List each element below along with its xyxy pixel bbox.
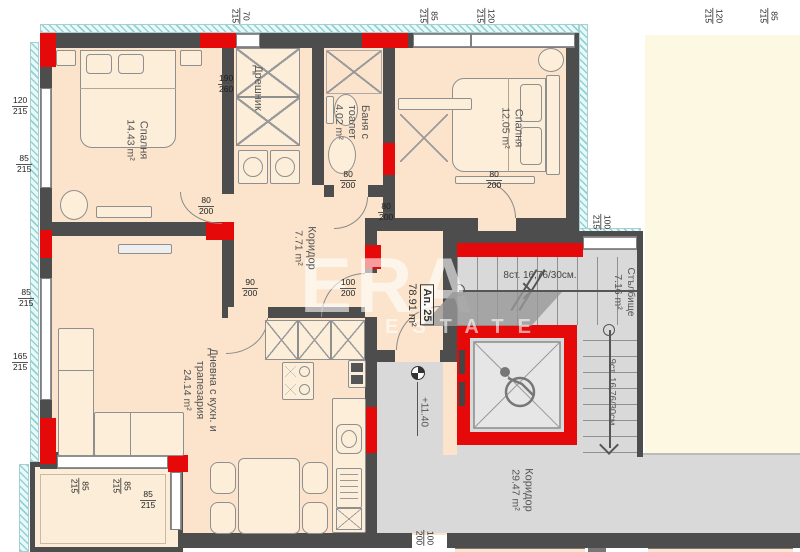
column (40, 230, 52, 258)
room-name: Спалня (513, 109, 525, 147)
window (236, 33, 260, 48)
dishwasher-lines (340, 474, 358, 502)
column (206, 222, 234, 240)
walkline-start (603, 324, 615, 336)
dimension-label: 165215 (12, 352, 28, 373)
burner (285, 384, 296, 395)
dimension-label: 100215 (591, 214, 612, 230)
floor-plan: ERA ESTATE Спалня 14.43 m² Дрешник Баня … (0, 0, 800, 552)
dimension-label: 85215 (140, 490, 156, 511)
wall-segment (516, 218, 579, 231)
apartment-area: 78.91 m² (406, 283, 418, 326)
sofa (94, 412, 184, 456)
dimension-label: 70215 (230, 8, 251, 24)
column (362, 33, 408, 48)
room-area: 14.43 m² (125, 119, 137, 160)
facade-hatch-right (579, 24, 588, 238)
lower-unit-wall (588, 548, 606, 552)
dimension-label: 85215 (111, 478, 132, 494)
room-area: 12.05 m² (500, 107, 512, 148)
room-area: 7.71 m² (293, 230, 305, 266)
dimension-label: 85215 (418, 8, 439, 24)
room-label-bedroom1: Спалня 14.43 m² (125, 119, 150, 160)
wall-segment (222, 48, 234, 194)
room-label-hallway: Коридор 7.71 m² (293, 226, 318, 269)
wall-segment (324, 185, 334, 197)
room-name: Дрешник (252, 65, 264, 111)
column (168, 455, 188, 472)
lower-unit-sliver (648, 548, 793, 552)
room-area: 24.14 m² (181, 369, 193, 410)
nightstand (538, 48, 564, 72)
dining-table (238, 458, 300, 534)
room-name: Дневна с кухн. и (207, 348, 219, 432)
wall-segment (447, 533, 800, 548)
corridor-top-line (643, 453, 800, 455)
kitchen-sink-basin (341, 430, 357, 448)
wall-segment (40, 67, 52, 88)
corridor-floor (377, 455, 800, 533)
desk (96, 206, 152, 218)
room-area: 7.16 m² (612, 274, 624, 310)
room-label-living: Дневна с кухн. и трапезария 24.14 m² (181, 348, 219, 432)
window (40, 278, 52, 400)
dimension-label: 90200 (242, 278, 258, 299)
room-label-bedroom2: Спалня 12.05 m² (500, 107, 525, 148)
dimension-label: 120215 (475, 8, 496, 24)
burner (299, 384, 310, 395)
wall-segment (222, 307, 228, 318)
sofa-cushion-line (58, 370, 94, 371)
stairs-walkline (459, 290, 637, 292)
window (57, 455, 168, 469)
nightstand (180, 50, 202, 66)
column (200, 33, 236, 48)
dimension-label: 80200 (378, 202, 394, 223)
wall-segment (377, 350, 395, 362)
wardrobe (236, 48, 300, 97)
pillow (118, 54, 144, 74)
wall-segment (566, 48, 579, 231)
facade-hatch-balcony (19, 464, 29, 552)
column (383, 143, 395, 175)
blanket-line (80, 88, 176, 89)
room-label-bathroom: Баня с тоалет 4.02 m² (333, 104, 371, 140)
room-label-corridor: Коридор 29.47 m² (510, 468, 535, 511)
room-name: Коридор (523, 468, 535, 511)
window (471, 33, 575, 48)
sofa-cushion-line (130, 412, 131, 456)
shower (326, 50, 382, 94)
desk-chair (60, 190, 88, 220)
dimension-label: 85215 (758, 8, 779, 24)
chair (210, 462, 236, 494)
pillow (86, 54, 112, 74)
burner (299, 366, 310, 377)
adjacent-area (645, 35, 800, 453)
dimension-label: 85215 (16, 154, 32, 175)
oven-door (351, 375, 363, 384)
mirror (400, 114, 448, 162)
elevator-cabin (472, 340, 562, 430)
dimension-label: 190260 (218, 74, 234, 95)
column (365, 407, 377, 453)
wall-segment (40, 400, 52, 418)
room-name: Коридор (306, 226, 318, 269)
washing-machine-drum (275, 157, 295, 177)
headboard (546, 75, 560, 175)
wall-segment (222, 236, 234, 307)
elevator-door (459, 382, 465, 406)
chair (302, 462, 328, 494)
burner (285, 366, 296, 377)
dresser (398, 98, 472, 110)
room-label-closet: Дрешник (252, 65, 264, 111)
wall-segment (40, 258, 52, 278)
window (40, 88, 52, 188)
dimension-label: 120215 (12, 96, 28, 117)
window (413, 33, 471, 48)
wall-segment (440, 350, 457, 362)
room-name: трапезария (194, 361, 206, 420)
room-name: Баня с (359, 105, 371, 139)
wall-segment (183, 533, 412, 548)
elevation-label: +11.40 (419, 397, 430, 427)
apartment-number: Ап. 25 (420, 285, 434, 326)
column (40, 33, 56, 67)
facade-hatch-left (30, 42, 39, 462)
room-area: 29.47 m² (510, 469, 522, 510)
dimension-label: 85215 (69, 478, 90, 494)
tv (118, 244, 172, 254)
elevation-benchmark-icon (411, 366, 425, 380)
kitchen-counter (265, 320, 298, 360)
room-area: 4.02 m² (333, 104, 345, 140)
room-label-stairwell: Стълбище 7.16 m² (612, 268, 636, 317)
apartment-label: Ап. 25 78.91 m² (406, 283, 434, 326)
dimension-label: 80200 (486, 170, 502, 191)
dimension-label: 100200 (340, 278, 356, 299)
wall-segment (368, 185, 395, 197)
nightstand (56, 50, 76, 66)
dimension-label: 80200 (340, 170, 356, 191)
column (40, 418, 56, 464)
oven-door (351, 363, 363, 372)
elevator-door (459, 350, 465, 374)
dimension-label: 100200 (414, 530, 435, 546)
wall-segment (637, 238, 643, 457)
cabinet (336, 508, 362, 530)
lower-unit-sliver (455, 548, 585, 552)
room-name: Спалня (138, 121, 150, 159)
stairs-down-label: 9ст. 16,76/30см (607, 359, 618, 426)
room-name: Стълбище (625, 268, 636, 317)
facade-hatch-top (40, 24, 579, 33)
chair (302, 502, 328, 534)
lobby-floor (377, 362, 443, 457)
window (583, 236, 637, 250)
wall-segment (312, 48, 324, 185)
wall-segment (40, 222, 234, 236)
sofa (58, 328, 94, 456)
dimension-label: 120215 (703, 8, 724, 24)
wardrobe (236, 97, 300, 146)
room-name: тоалет (346, 105, 358, 139)
dimension-label: 80200 (198, 196, 214, 217)
washing-machine-drum (243, 157, 263, 177)
chair (210, 502, 236, 534)
dimension-label: 85215 (18, 288, 34, 309)
window (170, 472, 182, 530)
stairs-up-label: 8ст. 16,76/30см. (480, 270, 600, 281)
